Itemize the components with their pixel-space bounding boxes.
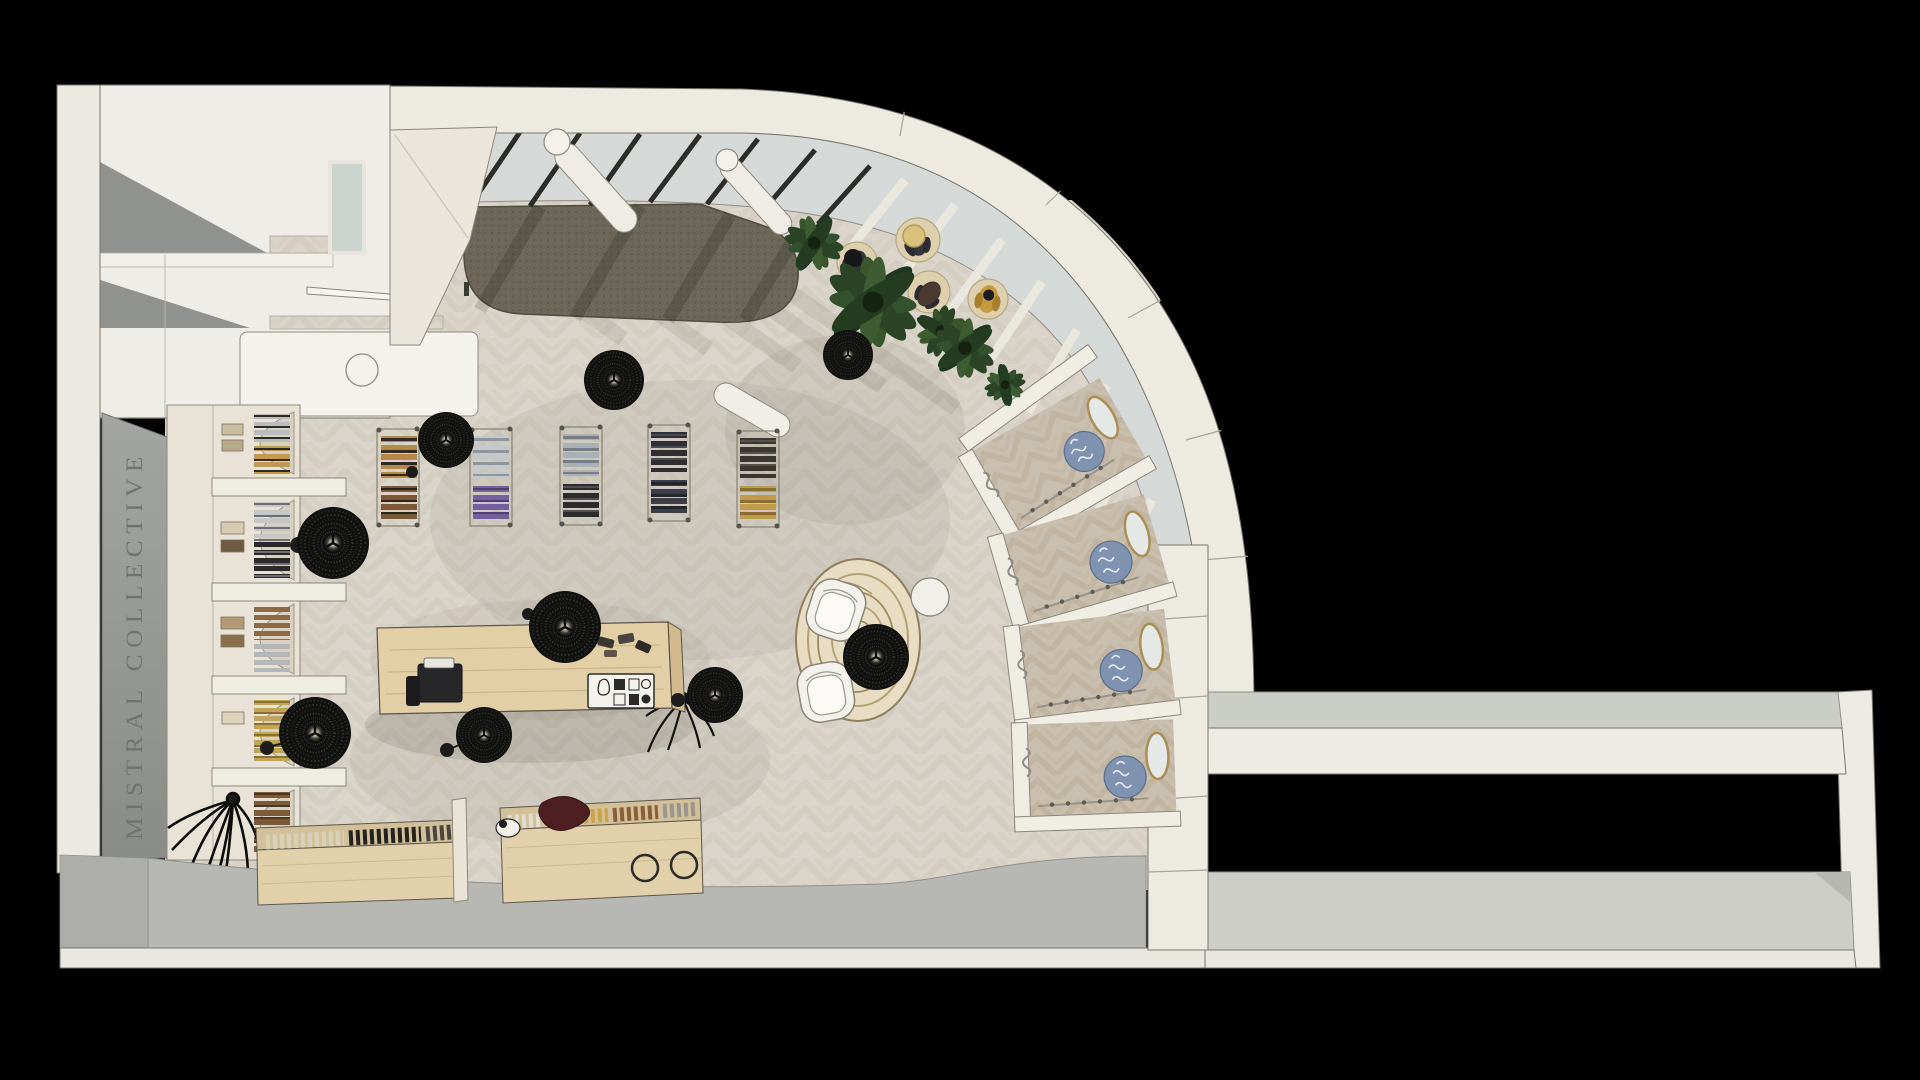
roof-slab	[1205, 872, 1854, 950]
pendant-lamp	[584, 350, 644, 410]
pendant-lamp	[843, 624, 909, 690]
door-handle	[464, 282, 469, 296]
garment-rack	[560, 425, 603, 527]
signage-wall: MISTRAL COLLECTIVE	[102, 413, 167, 858]
shoe-table-right	[496, 796, 703, 903]
straw-hat	[903, 225, 925, 247]
column-top	[346, 354, 378, 386]
store-name-text: MISTRAL COLLECTIVE	[122, 450, 147, 840]
lower-cream-wall	[1205, 950, 1856, 968]
wavy-mirror	[1146, 733, 1170, 780]
side-table	[911, 578, 949, 616]
left-outer-wall	[57, 85, 100, 873]
upper-cream-wall	[1154, 728, 1846, 774]
upper-gray-band	[1208, 692, 1842, 728]
garment-rack	[470, 427, 513, 528]
glazed-partition	[330, 162, 364, 253]
counter-tray	[588, 674, 654, 708]
accessory-bay	[1011, 717, 1181, 832]
bottom-wall	[60, 948, 1208, 968]
accessory-bay	[1003, 606, 1181, 734]
floorplan-render: MISTRAL COLLECTIVE	[0, 0, 1920, 1080]
blue-sphere	[1103, 755, 1146, 798]
cash-desk	[365, 622, 695, 763]
table-divider-panel	[452, 798, 468, 902]
plush-item	[496, 819, 520, 837]
column-cap	[716, 149, 738, 171]
pendant-lamp	[823, 330, 873, 380]
room1-floor	[270, 236, 330, 253]
column-cap	[544, 129, 570, 155]
